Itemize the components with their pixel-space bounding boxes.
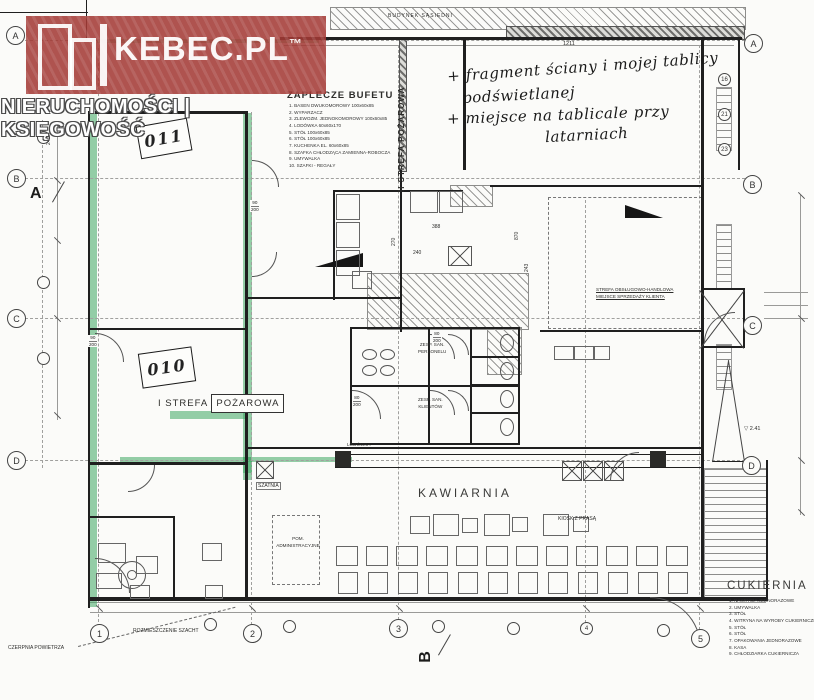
sales-zone-line1: STREFA OBSŁUGOWO-HANDLOWA [596, 287, 673, 294]
furniture-outline [202, 543, 222, 561]
list-item: 8. SZAFKA CHŁODZĄCA ZAMIENNA-ROBOCZA [289, 150, 390, 157]
furniture-outline [516, 546, 538, 566]
grid-marker-21: 21 [718, 108, 731, 121]
building-icon [70, 38, 96, 90]
wall-segment [766, 460, 768, 600]
lodowka-label: LODÓWKA [347, 442, 370, 449]
furniture-outline [368, 572, 388, 594]
wall-segment [333, 190, 335, 300]
grid-marker-bottom-1: 1 [90, 624, 109, 643]
section-mark-A: A [30, 185, 42, 203]
wall-segment [350, 327, 520, 329]
floor-plan-scan: BUDYNEK SĄSIEDNI ZAPLECZE BUFETU 1. BASE… [0, 0, 814, 700]
sales-zone-note: STREFA OBSŁUGOWO-HANDLOWA MIEJSCE SPRZED… [596, 287, 673, 300]
grid-marker-bottom-2: 2 [243, 624, 262, 643]
zaplecze-title: ZAPLECZE BUFETU [287, 90, 393, 101]
door-arc [128, 465, 155, 492]
list-item: 3. ZLEWOZM. JEDNOKOMOROWY 100x60x85 [289, 116, 390, 123]
szachty-label: ROZMIESZCZENIE SZACHT [133, 628, 199, 634]
shaft-block [650, 451, 666, 467]
construction-line [764, 292, 808, 293]
door-tag-4: 90200 [250, 200, 260, 212]
furniture-outline [638, 572, 658, 594]
door-tag-2: 80200 [352, 395, 362, 407]
door-tag-3: 80200 [432, 331, 442, 343]
furniture-outline [484, 514, 510, 536]
grid-marker-23: 23 [718, 143, 731, 156]
fixture-ellipse [362, 349, 377, 360]
furniture-outline [458, 572, 478, 594]
stairs-hatch [716, 224, 732, 290]
fixture-ellipse [380, 349, 395, 360]
list-item: 4. LODÓWKA 60x60x170 [289, 123, 390, 130]
dim-388: 388 [432, 224, 440, 230]
wall-segment [88, 328, 247, 330]
furniture-outline [518, 572, 538, 594]
grid-marker-small [204, 618, 217, 631]
wall-segment [88, 516, 175, 518]
logo-divider-bar [100, 24, 107, 86]
furniture-outline [410, 191, 438, 213]
fixture-ellipse [362, 365, 377, 376]
grid-marker-small [507, 622, 520, 635]
construction-line [800, 195, 801, 515]
door-arc [252, 160, 279, 187]
pom-admin-label: POM. ADMINISTRACYJNE [276, 536, 320, 549]
grid-marker-small [37, 131, 50, 144]
furniture-outline [548, 572, 568, 594]
door-height: 200 [251, 207, 259, 213]
pom-admin-line2: ADMINISTRACYJNE [276, 543, 320, 550]
list-item: 10. SZAFKI - REGAŁY [289, 163, 390, 170]
grid-marker-small [283, 620, 296, 633]
door-tag-1: 90200 [88, 335, 98, 347]
rotated-line [438, 634, 451, 655]
cukiernia-title: CUKIERNIA [727, 580, 808, 592]
list-item: 3. STÓŁ [729, 611, 814, 618]
wall-segment [540, 330, 703, 332]
fixture-ellipse [380, 365, 395, 376]
furniture-outline [668, 572, 688, 594]
wall-segment [470, 412, 520, 414]
wall-segment [400, 170, 402, 332]
fixture-ellipse [500, 418, 514, 436]
door-arc [448, 390, 469, 411]
list-item: 4. WITRYNA NA WYROBY CUKIERNICZE [729, 618, 814, 625]
wall-segment [470, 327, 472, 445]
cross-box [562, 461, 582, 481]
rotated-line [728, 360, 745, 462]
list-item: 2. WYPARZACZ [289, 110, 390, 117]
furniture-outline [578, 572, 598, 594]
fire-zone-2-label: II STREFA POŻAROWA [397, 80, 406, 192]
furniture-outline [546, 546, 568, 566]
furniture-outline [428, 572, 448, 594]
door-arc [252, 252, 277, 277]
logo-background [26, 16, 326, 94]
furniture-outline [352, 271, 372, 289]
furniture-outline [396, 546, 418, 566]
furniture-outline [98, 543, 126, 563]
grid-marker-left-D: D [7, 451, 26, 470]
fire-zone-1-part2: POŻAROWA [211, 394, 284, 413]
kiosk-label: KIOSK Z PRASĄ [558, 516, 596, 522]
furniture-outline [636, 546, 658, 566]
list-item: 1. NAKRYCIA JEDNORAZOWE [729, 598, 814, 605]
grid-marker-bottom-5: 5 [691, 629, 710, 648]
door-height: 200 [433, 338, 441, 344]
furniture-outline [456, 546, 478, 566]
furniture-outline [398, 572, 418, 594]
fixture-ellipse [500, 390, 514, 408]
grid-marker-small [37, 276, 50, 289]
sales-zone-line2: MIEJSCE SPRZEDAŻY KLIENTA [596, 294, 673, 301]
dim-870: 870 [514, 232, 520, 240]
wall-segment [701, 346, 745, 348]
furniture-outline [410, 516, 430, 534]
dim-240: 240 [413, 250, 421, 256]
furniture-outline [554, 346, 574, 360]
grid-marker-right-B: B [743, 175, 762, 194]
wall-segment [95, 111, 247, 114]
fire-zone-1-part1: I STREFA [158, 398, 208, 409]
dim-270: 270 [391, 238, 397, 246]
wall-segment [88, 462, 247, 465]
dim-level-241: ▽ 2.41 [744, 426, 760, 432]
wall-segment [86, 0, 87, 40]
neighbor-building-label: BUDYNEK SĄSIEDNI [388, 13, 453, 19]
cukiernia-equipment-list: 1. NAKRYCIA JEDNORAZOWE2. UMYWALKA3. STÓ… [729, 598, 814, 658]
kebec-watermark: KEBEC.PL™ NIERUCHOMOŚCI | KSIĘGOWOŚĆ [0, 6, 336, 124]
furniture-outline [366, 546, 388, 566]
grid-marker-small [657, 624, 670, 637]
door-height: 200 [89, 342, 97, 348]
grid-marker-right-A: A [744, 34, 763, 53]
list-item: 9. CHŁODZIARKA CUKIERNICZA [729, 651, 814, 658]
fixture-ellipse [500, 334, 514, 352]
construction-line [90, 612, 740, 613]
wall-segment [712, 461, 744, 462]
construction-line [764, 305, 808, 306]
grid-marker-left-A: A [6, 26, 25, 45]
wall-segment [245, 297, 402, 299]
wall-segment [701, 288, 745, 290]
fire-zone-1-label: I STREFA POŻAROWA [158, 398, 284, 409]
wall-segment [0, 12, 88, 13]
san-klienci-line1: ZESP. SAN. [418, 397, 443, 404]
furniture-outline [336, 546, 358, 566]
furniture-outline [666, 546, 688, 566]
list-item: 7. OPAKOWANIA JEDNORAZOWE [729, 638, 814, 645]
cross-box [604, 461, 624, 481]
san-klienci-label: ZESP. SAN. KLIENTÓW [418, 397, 443, 410]
list-item: 1. BASEN DWUKOMOROWY 100x60x85 [289, 103, 390, 110]
furniture-outline [96, 573, 122, 589]
wall-segment [245, 447, 703, 449]
furniture-outline [594, 346, 610, 360]
dim-1211: 1211 [563, 41, 575, 47]
cross-box [448, 246, 472, 266]
wall-segment [335, 454, 703, 455]
dim-243: 243 [524, 264, 530, 272]
fixture-ellipse [500, 362, 514, 380]
door-arc [704, 312, 735, 343]
furniture-outline [439, 191, 463, 213]
shaft-block [335, 451, 351, 467]
door-arc [448, 334, 469, 355]
handwritten-note-line4: latarniach [545, 124, 629, 146]
wall-segment [490, 185, 703, 187]
pom-admin-line1: POM. [276, 536, 320, 543]
door-arc [95, 333, 124, 362]
wall-segment [335, 467, 703, 468]
wall-segment [245, 111, 248, 600]
list-item: 7. KUCHENKA EL. 60x60x85 [289, 143, 390, 150]
furniture-outline [576, 546, 598, 566]
grid-marker-right-C: C [743, 316, 762, 335]
zaplecze-equipment-list: 1. BASEN DWUKOMOROWY 100x60x852. WYPARZA… [289, 103, 390, 170]
wall-segment [470, 356, 520, 358]
dashed-zone [272, 515, 320, 585]
room-number-011: 011 [136, 118, 193, 160]
construction-line [57, 125, 58, 420]
axis-line [251, 112, 252, 630]
wall-segment [280, 37, 742, 40]
wall-segment [518, 327, 520, 445]
furniture-outline [433, 514, 459, 536]
wall-segment [350, 327, 352, 445]
axis-line [25, 178, 745, 179]
list-item: 8. KASA [729, 645, 814, 652]
brand-name: KEBEC.PL™ [114, 30, 303, 68]
axis-line [699, 45, 700, 635]
list-item: 6. STÓŁ 100x60x85 [289, 136, 390, 143]
room-number-010: 010 [138, 346, 196, 388]
furniture-outline [606, 546, 628, 566]
wall-segment [88, 111, 90, 608]
furniture-outline [336, 222, 360, 248]
san-personel-label: ZESP. SAN. PERSONELU [418, 342, 446, 355]
handwritten-note-line1: + fragment ściany i mojej tablicy [447, 49, 719, 86]
cross-box [583, 461, 603, 481]
wall-segment [738, 37, 740, 170]
san-personel-line2: PERSONELU [418, 349, 446, 356]
building-icon [38, 24, 72, 90]
grid-marker-right-D: D [742, 456, 761, 475]
wall-segment [350, 443, 520, 445]
furniture-outline [136, 556, 158, 574]
list-item: 6. STÓŁ [729, 631, 814, 638]
furniture-outline [426, 546, 448, 566]
hatch-area [367, 273, 529, 330]
grid-marker-small [37, 352, 50, 365]
grid-marker-16: 16 [718, 73, 731, 86]
furniture-outline [130, 585, 150, 599]
szatnia-label: SZATNIA [256, 482, 281, 490]
grid-marker-left-C: C [7, 309, 26, 328]
czerpnia-label: CZERPNIA POWIETRZA [8, 645, 64, 651]
wall-segment [701, 37, 704, 599]
wall-segment [173, 518, 175, 600]
furniture-outline [608, 572, 628, 594]
section-mark-B: B [417, 651, 435, 663]
furniture-outline [512, 517, 528, 532]
furniture-outline [574, 346, 594, 360]
rotated-line [52, 181, 65, 202]
furniture-outline [462, 518, 478, 533]
grid-marker-bottom-4: 4 [580, 622, 593, 635]
handwritten-note-line2: podświetlanej [462, 83, 576, 107]
brand-text: KEBEC.PL [114, 30, 289, 67]
furniture-outline [488, 572, 508, 594]
furniture-outline [338, 572, 358, 594]
grid-marker-left-B: B [7, 169, 26, 188]
cross-box [256, 461, 274, 479]
san-klienci-line2: KLIENTÓW [418, 404, 443, 411]
construction-line [284, 45, 734, 46]
furniture-outline [336, 194, 360, 220]
furniture-outline [205, 585, 223, 599]
grid-marker-bottom-3: 3 [389, 619, 408, 638]
wall-segment [470, 384, 520, 386]
kawiarnia-label: KAWIARNIA [418, 486, 512, 500]
door-height: 200 [353, 402, 361, 408]
axis-line [42, 120, 43, 468]
grid-marker-small [432, 620, 445, 633]
furniture-outline [486, 546, 508, 566]
axis-line [25, 40, 745, 41]
list-item: 9. UMYWALKA [289, 156, 390, 163]
